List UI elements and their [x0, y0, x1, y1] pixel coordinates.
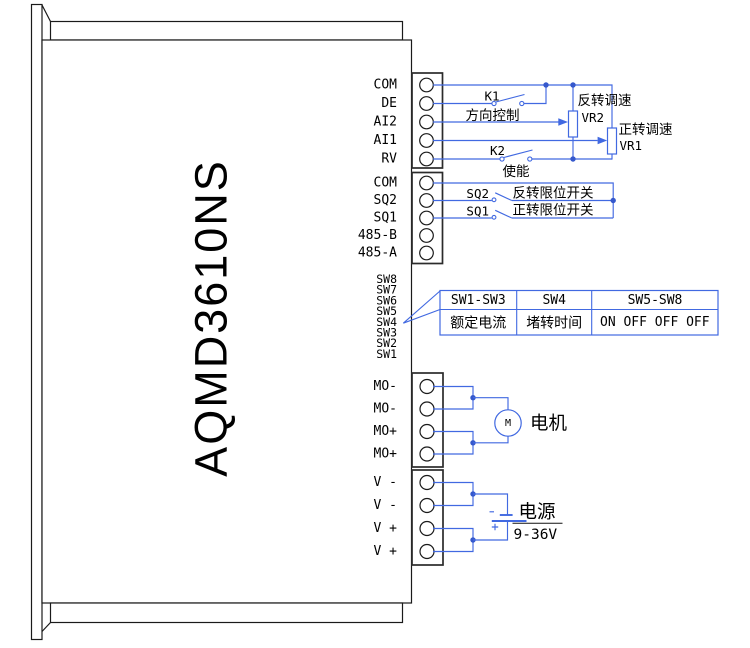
junction-dot [611, 198, 616, 203]
wire-k1-to-com [524, 87, 546, 104]
terminal-v-plus-2 [420, 545, 434, 559]
power-wiring: 电源 9-36V [433, 483, 563, 552]
terminal-block-motor [412, 373, 443, 467]
k2-label: K2 [490, 143, 505, 158]
battery-plus-sign [492, 524, 498, 530]
pin-label-mo-minus-1: MO- [374, 379, 397, 394]
table-header-3: SW5-SW8 [628, 293, 683, 308]
terminal-sq1 [420, 211, 434, 225]
table-value-3: ON OFF OFF OFF [600, 315, 710, 330]
pin-label-485b: 485-B [358, 228, 397, 243]
terminal-485a [420, 246, 434, 260]
terminal-de [420, 97, 434, 111]
sq1-label: SQ1 [466, 203, 489, 218]
k1-blade [496, 95, 525, 103]
sq2-label: SQ2 [466, 186, 489, 201]
ai1-arrowhead [598, 137, 608, 144]
terminal-v-plus-1 [420, 522, 434, 536]
motor-caption: 电机 [530, 413, 568, 434]
sq2-contact [492, 198, 496, 202]
diagram-canvas: AQMD3610NS COM DE AI2 AI1 RV [0, 0, 750, 648]
wire-motor-top [473, 398, 508, 410]
pin-label-v-minus-1: V - [374, 475, 397, 490]
pin-label-rv: RV [381, 152, 397, 167]
k2-contact-right [528, 157, 532, 161]
terminal-mo-minus-2 [420, 402, 434, 416]
pin-label-485a: 485-A [358, 246, 397, 261]
table-value-1: 额定电流 [450, 315, 506, 331]
vr2-caption: 反转调速 [578, 93, 632, 108]
pin-label-com2: COM [374, 176, 398, 191]
pin-label-sw1: SW1 [376, 347, 397, 361]
junction-dot [543, 82, 548, 87]
pin-label-v-minus-2: V - [374, 498, 397, 513]
wiring-diagram: AQMD3610NS COM DE AI2 AI1 RV [0, 0, 750, 648]
pin-label-mo-minus-2: MO- [374, 402, 397, 417]
terminal-485b [420, 229, 434, 243]
sq1-caption: 正转限位开关 [513, 203, 594, 218]
control-wiring: K1 方向控制 K2 使能 反转调速 VR2 正转调速 VR1 [433, 82, 673, 179]
bottom-corner-bevel [42, 623, 51, 632]
terminal-mo-plus-2 [420, 447, 434, 461]
k1-contact-right [520, 101, 524, 105]
terminal-sq2 [420, 194, 434, 208]
terminal-com2 [420, 176, 434, 190]
wire-motor-bottom [473, 436, 508, 443]
sq1-blade [495, 210, 512, 218]
pin-label-mo-plus-2: MO+ [374, 447, 398, 462]
terminal-block-power [412, 470, 443, 565]
pin-label-v-plus-2: V + [374, 544, 398, 559]
sq1-contact [492, 215, 496, 219]
motor-symbol-letter: M [505, 418, 511, 429]
junction-dot [570, 156, 575, 161]
k1-caption: 方向控制 [466, 108, 520, 123]
dip-pin-labels: SW8 SW7 SW6 SW5 SW4 SW3 SW2 SW1 [376, 272, 397, 361]
k2-blade [504, 150, 533, 158]
pin-label-de: DE [381, 96, 397, 111]
terminal-rv [420, 152, 434, 166]
terminal-ai2 [420, 115, 434, 129]
motor-wiring: M 电机 [433, 387, 568, 455]
k2-caption: 使能 [503, 163, 530, 179]
pin-label-ai1: AI1 [374, 133, 397, 148]
top-corner-bevel [42, 5, 51, 22]
junction-dot [570, 82, 575, 87]
terminal-mo-minus-1 [420, 380, 434, 394]
top-flange [51, 22, 403, 41]
vr1-label: VR1 [620, 138, 643, 153]
vr1-caption: 正转调速 [619, 122, 673, 137]
pin-label-com1: COM [374, 78, 398, 93]
terminal-v-minus-2 [420, 499, 434, 513]
table-header-2: SW4 [542, 293, 566, 308]
ai2-arrowhead [558, 118, 568, 125]
pin-label-v-plus-1: V + [374, 521, 398, 536]
wire-battery-bottom [473, 521, 508, 540]
pin-label-ai2: AI2 [374, 115, 397, 130]
vr2-label: VR2 [582, 110, 605, 125]
pin-label-sq1: SQ1 [374, 211, 397, 226]
sq2-blade [495, 193, 512, 201]
pin-label-sq2: SQ2 [374, 193, 397, 208]
terminal-com1 [420, 78, 434, 92]
table-value-2: 堵转时间 [526, 315, 582, 331]
limit-switch-wiring: SQ2 反转限位开关 SQ1 正转限位开关 [433, 183, 616, 219]
terminal-mo-plus-1 [420, 425, 434, 439]
device-model: AQMD3610NS [186, 159, 237, 477]
vr1-potentiometer [608, 128, 617, 154]
dip-table: SW1-SW3 SW4 SW5-SW8 额定电流 堵转时间 ON OFF OFF… [403, 291, 718, 336]
mounting-plate [32, 5, 43, 640]
device-outline: AQMD3610NS [32, 5, 412, 640]
terminal-block-control [412, 73, 443, 168]
power-voltage: 9-36V [514, 527, 558, 543]
sq2-caption: 反转限位开关 [513, 185, 594, 200]
terminal-ai1 [420, 134, 434, 148]
vr2-potentiometer [569, 111, 578, 137]
terminal-v-minus-1 [420, 476, 434, 490]
table-header-1: SW1-SW3 [451, 293, 506, 308]
bottom-flange [51, 603, 403, 623]
power-caption: 电源 [519, 501, 556, 522]
k1-label: K1 [484, 89, 499, 104]
pin-label-mo-plus-1: MO+ [374, 424, 398, 439]
